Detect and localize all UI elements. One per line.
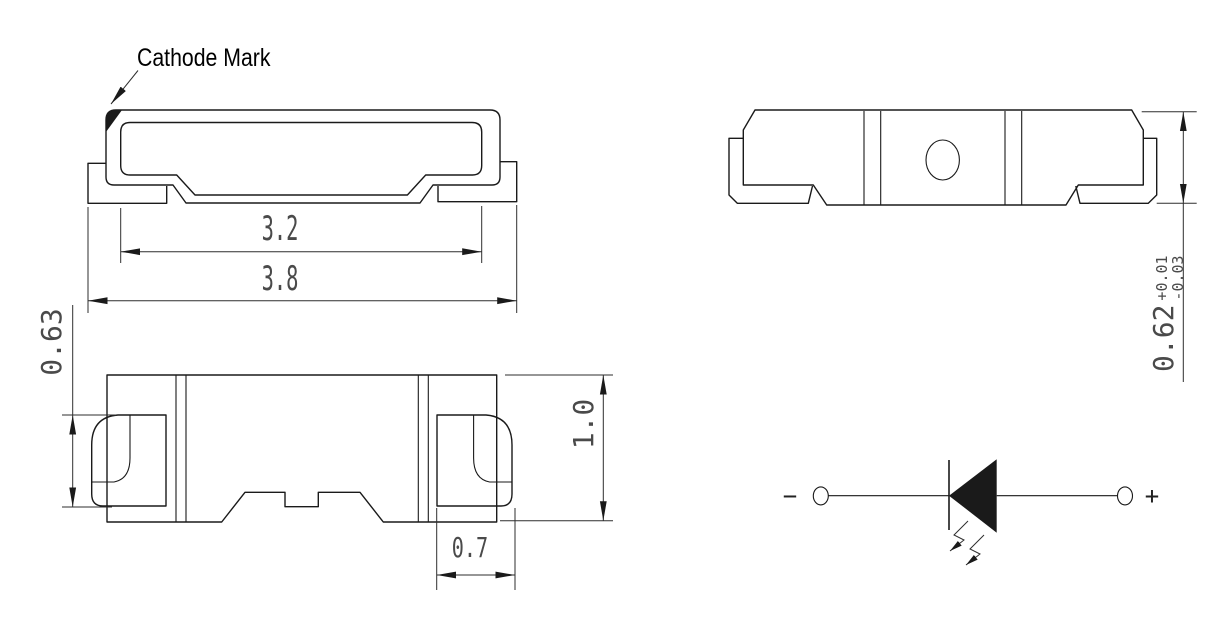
led-schematic-symbol [813,459,1132,565]
top-view [88,71,517,204]
front-view [92,375,512,522]
side-view-right-tab [1076,138,1157,203]
diode-triangle [949,459,997,532]
light-emission-arrow [966,535,984,565]
top-view-inner-outline [121,123,482,196]
front-view-left-lead [92,415,166,506]
drawing-linework [0,0,1217,626]
side-view [729,110,1157,205]
front-view-dimensions [62,305,613,590]
anode-terminal-circle [1118,487,1133,505]
dim-text-body-height: 1.0 [570,376,598,472]
dim-text-inner-width: 3.2 [220,212,340,246]
top-view-outer-outline [106,110,500,203]
minus-polarity-label: − [776,482,804,510]
dim-text-overall-width: 3.8 [220,262,340,296]
tolerance-minus: -0.03 [1170,255,1186,300]
cathode-mark [106,110,122,132]
cathode-mark-label: Cathode Mark [137,46,270,71]
side-view-left-tab [729,138,813,203]
side-view-body [743,110,1143,205]
dim-text-lead-height: 0.63 [38,296,66,388]
cathode-mark-leader [111,71,138,105]
led-package-drawing: Cathode Mark 3.2 3.8 0.63 1.0 0.7 0.62+0… [0,0,1217,626]
dim-text-lead-width: 0.7 [430,534,509,562]
top-view-left-pad [88,163,167,203]
plus-polarity-label: + [1138,482,1166,510]
thickness-tolerance: +0.01-0.03 [1154,255,1186,300]
top-view-right-pad [438,162,517,202]
front-view-right-lead [437,415,512,506]
side-view-center-hole [926,140,959,180]
dim-text-thickness: 0.62+0.01-0.03 [1150,255,1186,372]
light-emission-arrow [950,521,968,551]
tolerance-plus: +0.01 [1154,255,1170,300]
thickness-value: 0.62 [1147,305,1180,372]
cathode-terminal-circle [813,487,828,505]
